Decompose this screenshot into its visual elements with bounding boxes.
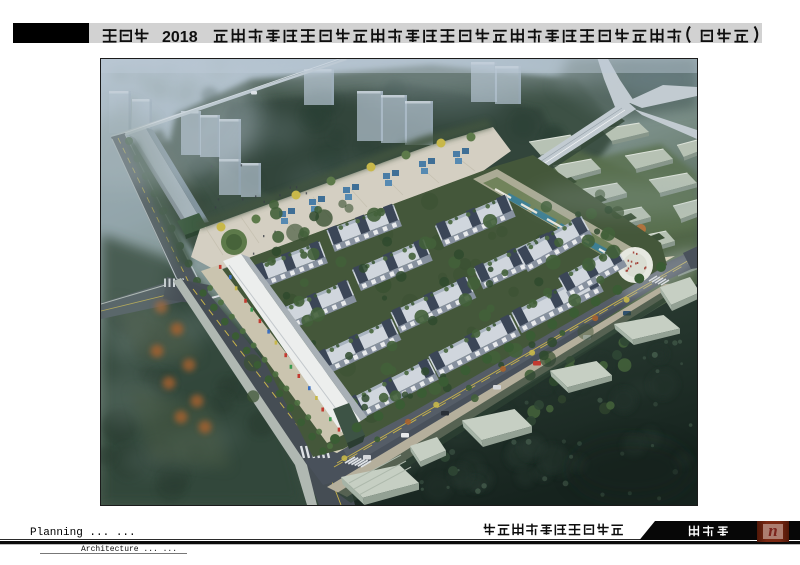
svg-text:2018: 2018	[162, 29, 198, 45]
